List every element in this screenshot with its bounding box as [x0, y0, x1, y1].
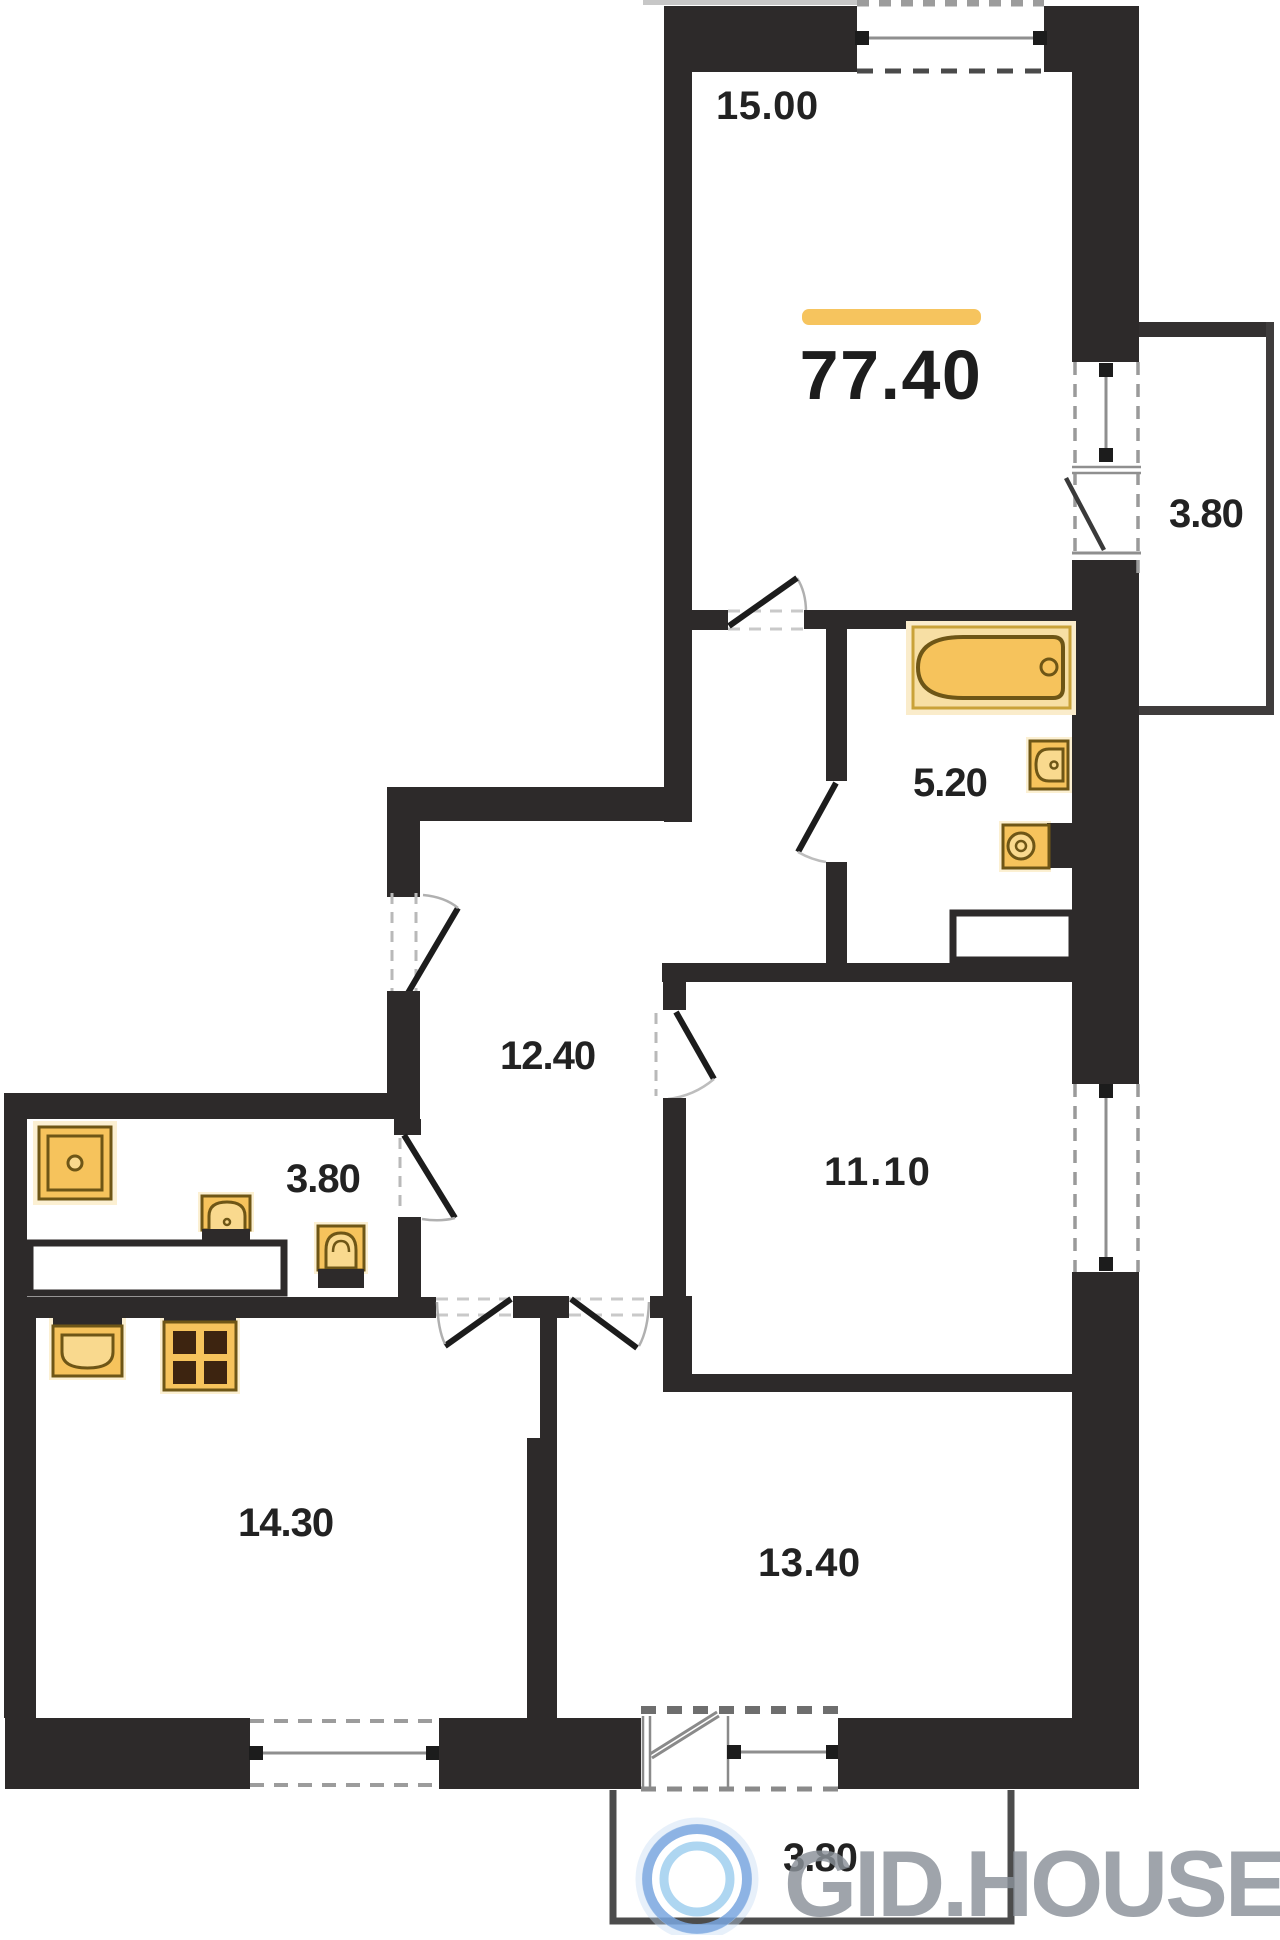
- svg-text:3.80: 3.80: [286, 1157, 360, 1201]
- svg-text:77.40: 77.40: [800, 336, 983, 414]
- svg-text:3.80: 3.80: [1169, 492, 1243, 536]
- svg-text:12.40: 12.40: [500, 1034, 595, 1078]
- svg-text:15.00: 15.00: [716, 84, 819, 128]
- svg-text:11.10: 11.10: [824, 1150, 932, 1194]
- svg-text:GID.HOUSE: GID.HOUSE: [784, 1831, 1280, 1935]
- svg-text:5.20: 5.20: [913, 761, 987, 805]
- svg-text:14.30: 14.30: [238, 1501, 333, 1545]
- svg-text:13.40: 13.40: [758, 1541, 861, 1585]
